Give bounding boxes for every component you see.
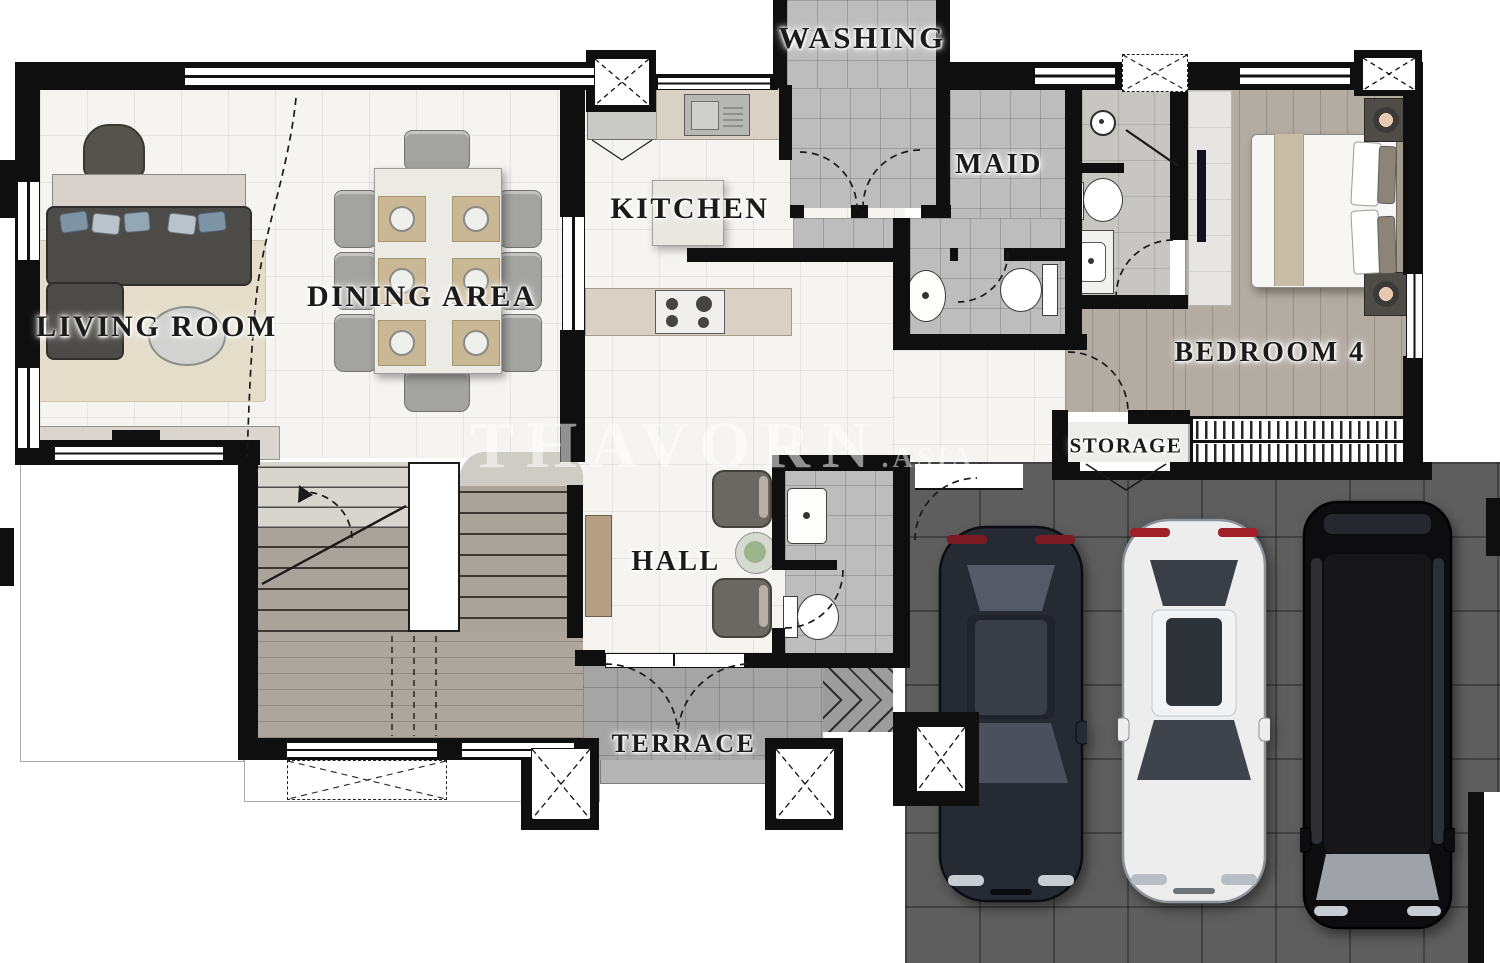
- watermark-suffix: .ASIA: [882, 443, 976, 475]
- wall-segment: [1065, 85, 1082, 348]
- tv-icon: [1197, 150, 1206, 242]
- wall-segment: [893, 455, 910, 668]
- bed-runner: [1274, 134, 1304, 286]
- bay-pillar: [0, 528, 14, 586]
- placemat: [452, 196, 500, 242]
- toilet: [797, 594, 839, 640]
- dining-chair: [404, 370, 470, 412]
- wall-segment: [893, 218, 910, 336]
- window: [1406, 274, 1423, 358]
- car-black-suv: [1300, 498, 1455, 932]
- dining-chair: [498, 314, 542, 372]
- room-label-living: LIVING ROOM: [36, 310, 278, 344]
- nightstand: [1364, 272, 1408, 316]
- plate-icon: [463, 330, 489, 356]
- car-white-sedan: [1118, 516, 1270, 906]
- armchair-cushion: [759, 585, 768, 627]
- terrace-door-seam: [673, 653, 675, 666]
- placemat: [378, 320, 426, 366]
- dining-chair: [334, 190, 378, 248]
- wall-segment: [1128, 410, 1190, 424]
- wall-segment: [1403, 62, 1423, 275]
- side-table: [735, 532, 777, 574]
- toilet: [1083, 178, 1123, 222]
- service-corridor-floor: [793, 218, 893, 250]
- wall-segment: [1082, 295, 1188, 309]
- room-label-maid: MAID: [955, 149, 1043, 181]
- toilet-tank: [1042, 264, 1058, 316]
- pillow: [123, 211, 151, 233]
- column-x-icon: [1362, 57, 1416, 91]
- room-label-dining: DINING AREA: [307, 280, 537, 314]
- window: [658, 77, 770, 90]
- terrace-door-threshold: [605, 653, 745, 668]
- pillow: [197, 211, 227, 234]
- window: [17, 368, 40, 448]
- hanging-clothes-icon: [1196, 444, 1400, 462]
- placemat: [452, 320, 500, 366]
- room-label-bedroom4: BEDROOM 4: [1174, 337, 1365, 369]
- console-table: [52, 174, 246, 210]
- column-x-icon: [775, 748, 835, 820]
- wall-segment: [567, 485, 583, 638]
- lamp-icon: [1373, 281, 1399, 307]
- wall-segment: [238, 458, 258, 755]
- shower-head-icon: [1090, 110, 1116, 136]
- accent-pillow: [1377, 146, 1397, 205]
- bay-window-dashed: [287, 760, 447, 800]
- pillow: [167, 212, 197, 235]
- plate-icon: [389, 330, 415, 356]
- accent-pillow: [1377, 216, 1397, 275]
- kitchen-sink: [684, 94, 750, 136]
- drainboard: [723, 103, 743, 127]
- wall-segment: [851, 205, 868, 218]
- wall-segment: [1082, 163, 1124, 173]
- pillow: [59, 210, 90, 234]
- room-label-kitchen: KITCHEN: [610, 192, 769, 226]
- window: [562, 217, 585, 330]
- watermark: THAVORN .ASIA: [470, 408, 975, 484]
- terrace-step: [600, 758, 767, 784]
- room-label-terrace: TERRACE: [612, 729, 757, 759]
- toilet-tank: [783, 596, 798, 638]
- window: [55, 446, 223, 461]
- hanging-clothes-icon: [1196, 421, 1400, 439]
- stair-flight-upper-dashed: [258, 462, 408, 528]
- wall-segment: [743, 653, 908, 668]
- bay-pillar: [0, 160, 16, 218]
- dining-chair: [498, 190, 542, 248]
- floor-plan: LIVING ROOM DINING AREA KITCHEN WASHING …: [0, 0, 1500, 963]
- wall-segment: [1468, 792, 1484, 963]
- stair-void: [408, 462, 460, 632]
- wardrobe: [1190, 416, 1406, 466]
- walkway-chevrons: [823, 700, 893, 732]
- porch-outline: [20, 444, 244, 762]
- wall-segment: [779, 85, 792, 160]
- wall-segment: [936, 85, 950, 208]
- placemat: [378, 196, 426, 242]
- window: [287, 742, 437, 758]
- wall-segment: [575, 650, 605, 666]
- wall-segment: [790, 205, 804, 218]
- pillow: [91, 213, 121, 236]
- room-label-storage: STORAGE: [1070, 434, 1183, 459]
- window: [1240, 67, 1350, 85]
- washbasin: [787, 488, 827, 544]
- wall-segment: [893, 334, 1087, 350]
- window: [185, 67, 610, 86]
- bedroom-corridor-floor: [1065, 309, 1188, 412]
- column-x-icon: [916, 726, 966, 792]
- plant-icon: [744, 541, 766, 563]
- nightstand: [1364, 98, 1408, 142]
- plate-icon: [463, 206, 489, 232]
- sink-basin: [691, 101, 719, 130]
- wall-segment: [560, 85, 585, 217]
- column-x-icon: [594, 58, 650, 106]
- wall-segment: [1170, 85, 1188, 240]
- window: [17, 182, 40, 260]
- wall-segment: [950, 248, 958, 261]
- wall-segment: [1486, 498, 1500, 556]
- plate-icon: [389, 206, 415, 232]
- room-label-hall: HALL: [631, 546, 720, 578]
- wall-segment: [772, 560, 837, 570]
- wardrobe-rail: [1193, 440, 1403, 443]
- stair-landing: [258, 632, 583, 738]
- lamp-icon: [1373, 107, 1399, 133]
- storage-door-opening: [1080, 462, 1170, 471]
- toilet: [1000, 268, 1042, 312]
- marble-accent-wall: [1188, 90, 1232, 306]
- watermark-text: THAVORN: [470, 408, 882, 484]
- dining-chair: [404, 130, 470, 172]
- armchair: [83, 124, 145, 178]
- window: [1035, 67, 1115, 85]
- opening-dashed-box: [1122, 54, 1188, 92]
- column-x-icon: [531, 748, 591, 820]
- console-table: [585, 515, 612, 617]
- wall-segment: [687, 248, 893, 262]
- hall-armchair: [712, 578, 772, 638]
- garage-edge-strip: [1484, 792, 1500, 963]
- dining-chair: [334, 314, 378, 372]
- walkway-chevrons: [823, 668, 893, 700]
- washing-floor: [790, 88, 936, 208]
- wall-segment: [1004, 248, 1066, 261]
- room-label-washing: WASHING: [778, 20, 945, 56]
- stove: [655, 290, 725, 334]
